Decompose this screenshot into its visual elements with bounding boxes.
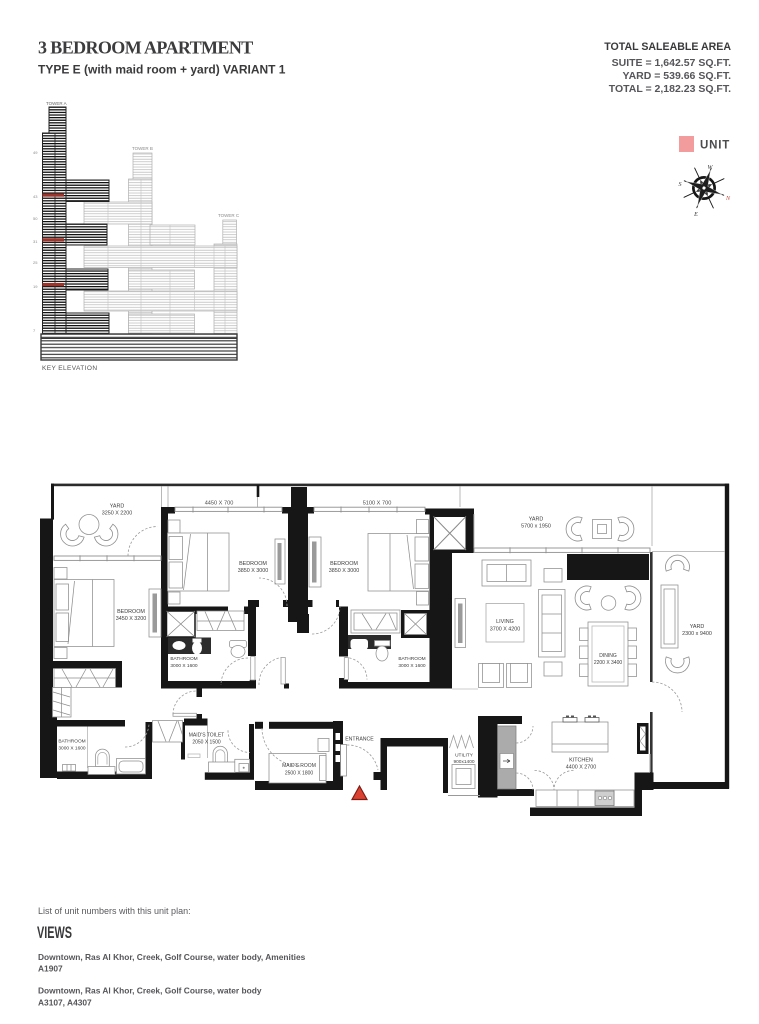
svg-text:BEDROOM: BEDROOM: [117, 609, 145, 615]
svg-text:MAID'S ROOM: MAID'S ROOM: [282, 763, 316, 769]
svg-text:E: E: [693, 212, 698, 218]
svg-text:BATHROOM: BATHROOM: [170, 656, 197, 662]
svg-text:TOWER A: TOWER A: [46, 101, 67, 106]
svg-text:2300 x 9400: 2300 x 9400: [682, 631, 712, 637]
svg-text:3250 X 2200: 3250 X 2200: [102, 511, 133, 517]
svg-text:5100 X 700: 5100 X 700: [363, 501, 392, 507]
svg-text:TOWER B: TOWER B: [132, 146, 153, 151]
svg-text:A1907: A1907: [38, 964, 63, 974]
svg-text:ENTRANCE: ENTRANCE: [345, 737, 374, 743]
svg-text:DINING: DINING: [599, 653, 617, 659]
svg-text:YARD: YARD: [690, 624, 705, 630]
svg-text:MAID'S TOILET: MAID'S TOILET: [189, 733, 225, 739]
svg-text:3000 X 1600: 3000 X 1600: [170, 663, 198, 669]
svg-text:TOTAL = 2,182.23 SQ.FT.: TOTAL = 2,182.23 SQ.FT.: [609, 83, 731, 95]
svg-text:KEY ELEVATION: KEY ELEVATION: [42, 365, 97, 372]
svg-text:Downtown, Ras Al Khor, Creek,: Downtown, Ras Al Khor, Creek, Golf Cours…: [38, 952, 306, 962]
svg-text:LIVING: LIVING: [496, 619, 514, 625]
svg-text:900x1400: 900x1400: [453, 759, 474, 765]
svg-text:3000 X 1600: 3000 X 1600: [398, 663, 426, 669]
svg-text:YARD: YARD: [529, 517, 544, 523]
svg-text:W: W: [708, 165, 714, 171]
svg-text:49: 49: [33, 150, 38, 155]
svg-text:List of unit numbers with this: List of unit numbers with this unit plan…: [38, 906, 191, 916]
svg-text:A3107, A4307: A3107, A4307: [38, 998, 92, 1008]
svg-text:3850 X 3000: 3850 X 3000: [329, 568, 360, 574]
svg-text:2500 X 1800: 2500 X 1800: [285, 771, 314, 777]
svg-text:S: S: [679, 182, 682, 188]
svg-text:19: 19: [33, 284, 38, 289]
svg-text:BEDROOM: BEDROOM: [330, 561, 358, 567]
svg-text:3 BEDROOM APARTMENT: 3 BEDROOM APARTMENT: [38, 38, 253, 58]
svg-text:Downtown, Ras Al Khor, Creek,: Downtown, Ras Al Khor, Creek, Golf Cours…: [38, 986, 262, 996]
svg-text:3450 X 3200: 3450 X 3200: [116, 616, 147, 622]
svg-text:2050 X 1500: 2050 X 1500: [192, 740, 221, 746]
svg-text:3700 X 4200: 3700 X 4200: [490, 627, 521, 633]
svg-text:N: N: [725, 196, 731, 202]
svg-text:VIEWS: VIEWS: [37, 923, 72, 942]
svg-text:4450 X 700: 4450 X 700: [205, 501, 234, 507]
svg-text:YARD: YARD: [110, 504, 125, 510]
svg-text:BATHROOM: BATHROOM: [398, 656, 425, 662]
svg-text:4400 X 2700: 4400 X 2700: [566, 765, 597, 771]
svg-text:50: 50: [33, 216, 38, 221]
svg-text:3850 X 3000: 3850 X 3000: [238, 568, 269, 574]
svg-text:7: 7: [33, 328, 36, 333]
svg-text:25: 25: [33, 260, 38, 265]
svg-text:UNIT: UNIT: [700, 140, 730, 152]
svg-text:3000 X 1600: 3000 X 1600: [58, 746, 86, 752]
svg-text:TOTAL SALEABLE AREA: TOTAL SALEABLE AREA: [604, 41, 731, 53]
svg-text:BEDROOM: BEDROOM: [239, 561, 267, 567]
svg-text:KITCHEN: KITCHEN: [569, 758, 593, 764]
svg-text:SUITE = 1,642.57 SQ.FT.: SUITE = 1,642.57 SQ.FT.: [612, 57, 731, 69]
svg-text:UTILITY: UTILITY: [455, 753, 474, 759]
svg-text:5700 x 1950: 5700 x 1950: [521, 524, 551, 530]
svg-text:43: 43: [33, 194, 38, 199]
svg-text:BATHROOM: BATHROOM: [58, 739, 85, 745]
svg-text:TOWER C: TOWER C: [218, 213, 240, 218]
svg-text:31: 31: [33, 239, 38, 244]
svg-text:2200 X 3400: 2200 X 3400: [594, 660, 623, 666]
svg-text:TYPE E (with maid room + yard): TYPE E (with maid room + yard) VARIANT 1: [38, 63, 286, 77]
svg-text:YARD = 539.66 SQ.FT.: YARD = 539.66 SQ.FT.: [623, 70, 732, 82]
